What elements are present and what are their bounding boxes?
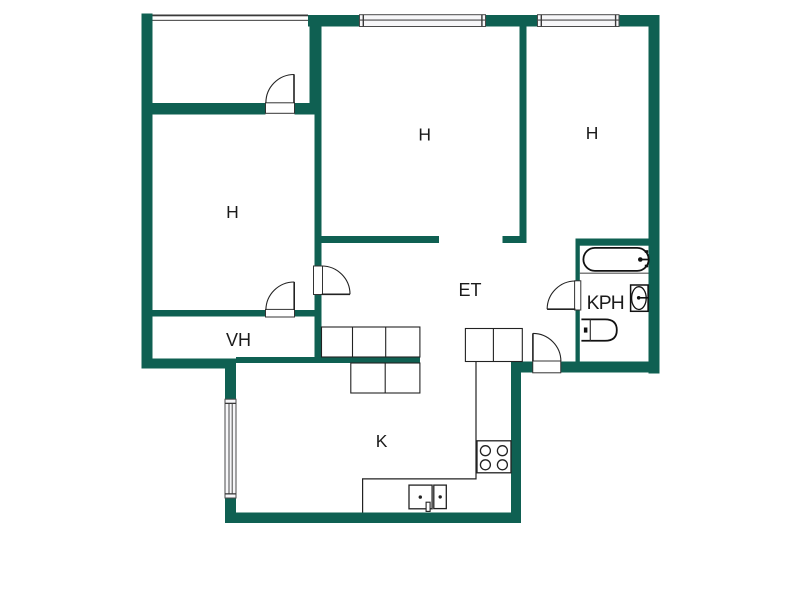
- svg-text:ET: ET: [458, 280, 481, 300]
- svg-text:H: H: [418, 124, 431, 144]
- svg-text:VH: VH: [226, 330, 251, 350]
- svg-text:H: H: [586, 123, 599, 143]
- svg-text:KPH: KPH: [587, 293, 624, 314]
- svg-text:K: K: [376, 431, 388, 451]
- svg-text:H: H: [226, 202, 239, 222]
